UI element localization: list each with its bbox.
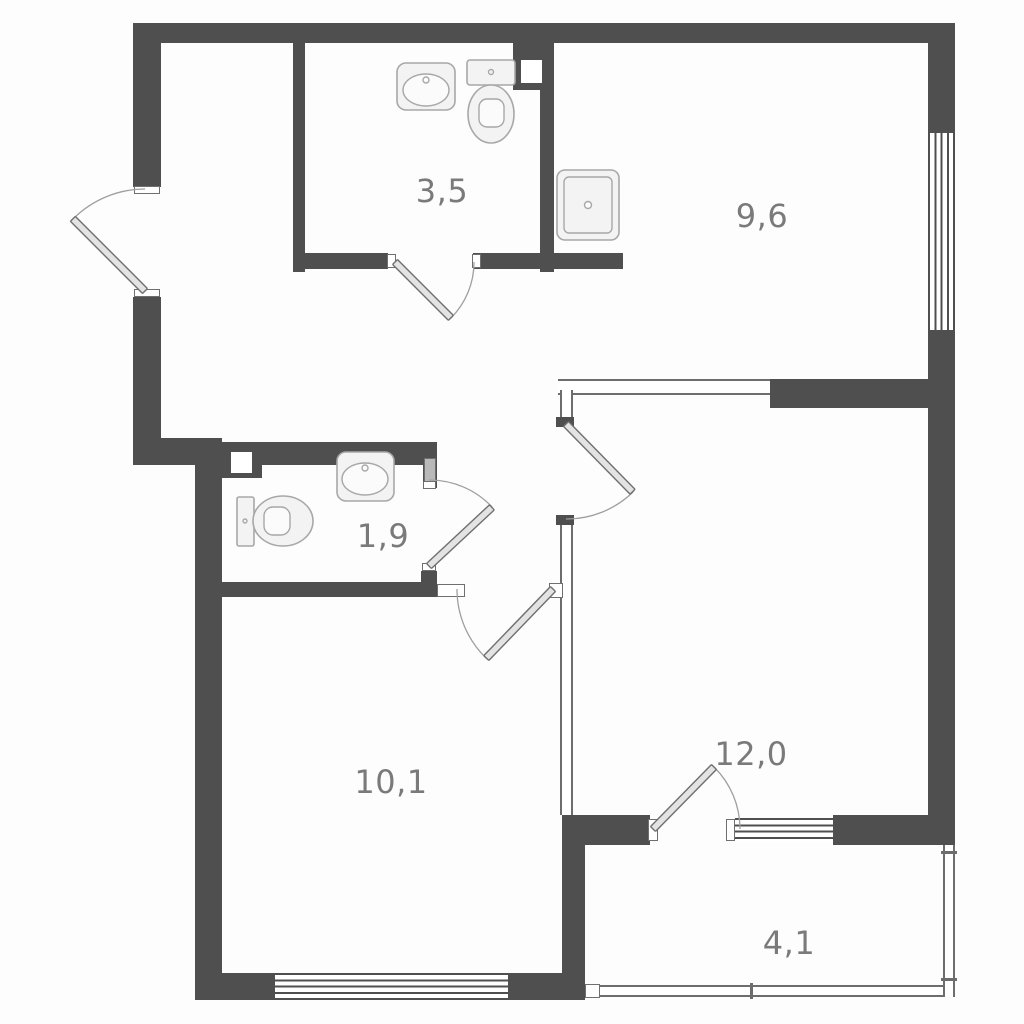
entrance-door [70, 189, 147, 293]
toilet-icon [237, 496, 313, 546]
balcony-door [651, 764, 740, 831]
room-area-label-wc: 1,9 [357, 517, 409, 555]
floor-plan: 3,5 9,6 1,9 10,1 12,0 4,1 [0, 0, 1024, 1024]
toilet-icon [467, 60, 515, 143]
living-room-door [564, 422, 636, 519]
washbasin-icon [337, 452, 394, 501]
room-area-label-bathroom: 3,5 [416, 172, 468, 210]
room-area-label-kitchen: 9,6 [736, 197, 788, 235]
bathroom-door [393, 260, 474, 321]
bedroom-door [457, 587, 556, 661]
room-area-label-living-room: 12,0 [714, 735, 787, 773]
washbasin-icon [397, 63, 455, 110]
wc-door [427, 480, 495, 569]
room-area-label-balcony: 4,1 [763, 924, 815, 962]
room-area-label-bedroom: 10,1 [354, 763, 427, 801]
kitchen-sink-icon [557, 170, 619, 240]
doors-and-fixtures-layer [0, 0, 1024, 1024]
